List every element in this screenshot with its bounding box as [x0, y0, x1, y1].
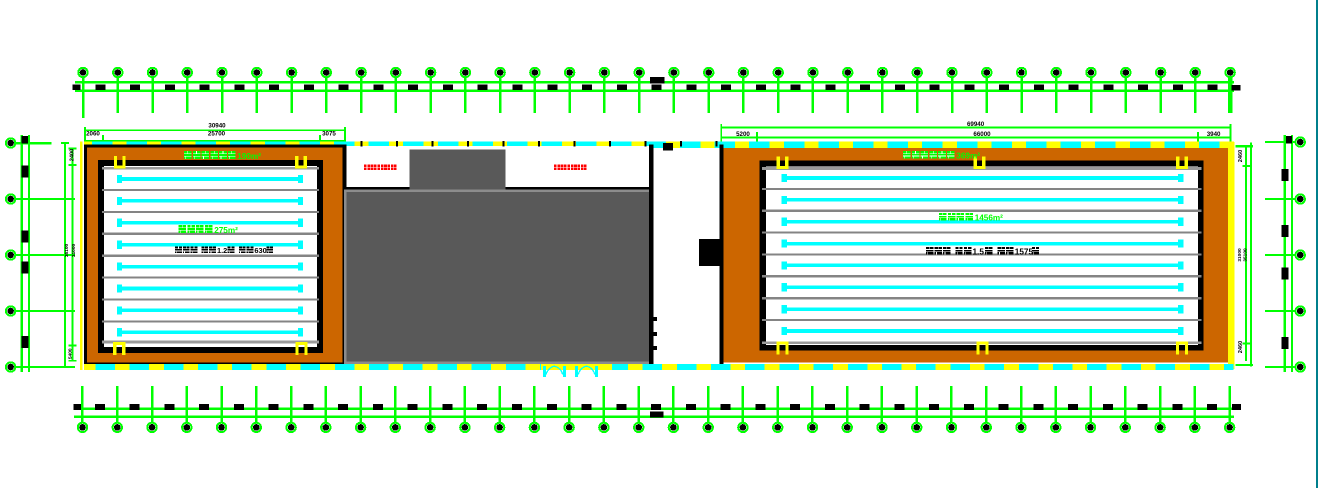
svg-text:2060: 2060 [86, 131, 100, 138]
svg-text:1.2: 1.2 [217, 246, 227, 255]
svg-text:3940: 3940 [1207, 131, 1221, 138]
svg-text:35100: 35100 [1243, 248, 1249, 262]
svg-text:369m²: 369m² [956, 152, 980, 161]
svg-text:630: 630 [254, 246, 266, 255]
svg-text:35100: 35100 [64, 244, 70, 258]
svg-text:1.5: 1.5 [973, 247, 985, 256]
svg-text:2400: 2400 [69, 149, 75, 161]
svg-text:31000: 31000 [71, 244, 77, 258]
svg-text:30940: 30940 [208, 122, 226, 129]
svg-text:190m²: 190m² [237, 152, 261, 161]
svg-text:2460: 2460 [1238, 341, 1244, 353]
svg-text:275m²: 275m² [214, 226, 238, 235]
svg-text:31000: 31000 [1237, 248, 1243, 262]
svg-text:3075: 3075 [322, 131, 336, 138]
svg-text:25700: 25700 [208, 131, 226, 138]
svg-text:5400: 5400 [68, 348, 74, 359]
svg-text:1575: 1575 [1015, 247, 1034, 256]
svg-text:66000: 66000 [973, 131, 991, 138]
svg-text:2460: 2460 [1238, 150, 1244, 162]
svg-text:1456m²: 1456m² [975, 214, 1003, 223]
svg-text:69940: 69940 [967, 121, 985, 128]
svg-text:5200: 5200 [736, 131, 750, 138]
